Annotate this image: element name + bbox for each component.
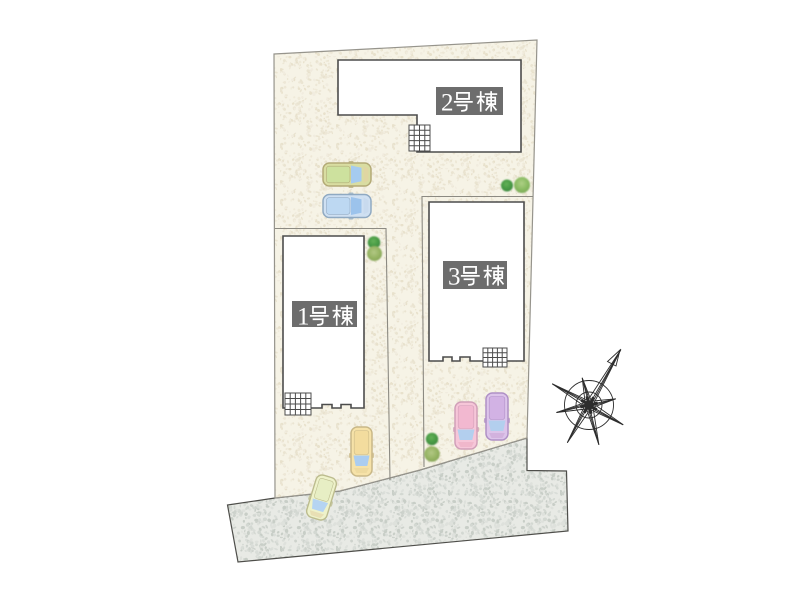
svg-text:3: 3 [448,264,461,291]
svg-text:1: 1 [297,304,310,331]
svg-text:2: 2 [441,90,454,117]
